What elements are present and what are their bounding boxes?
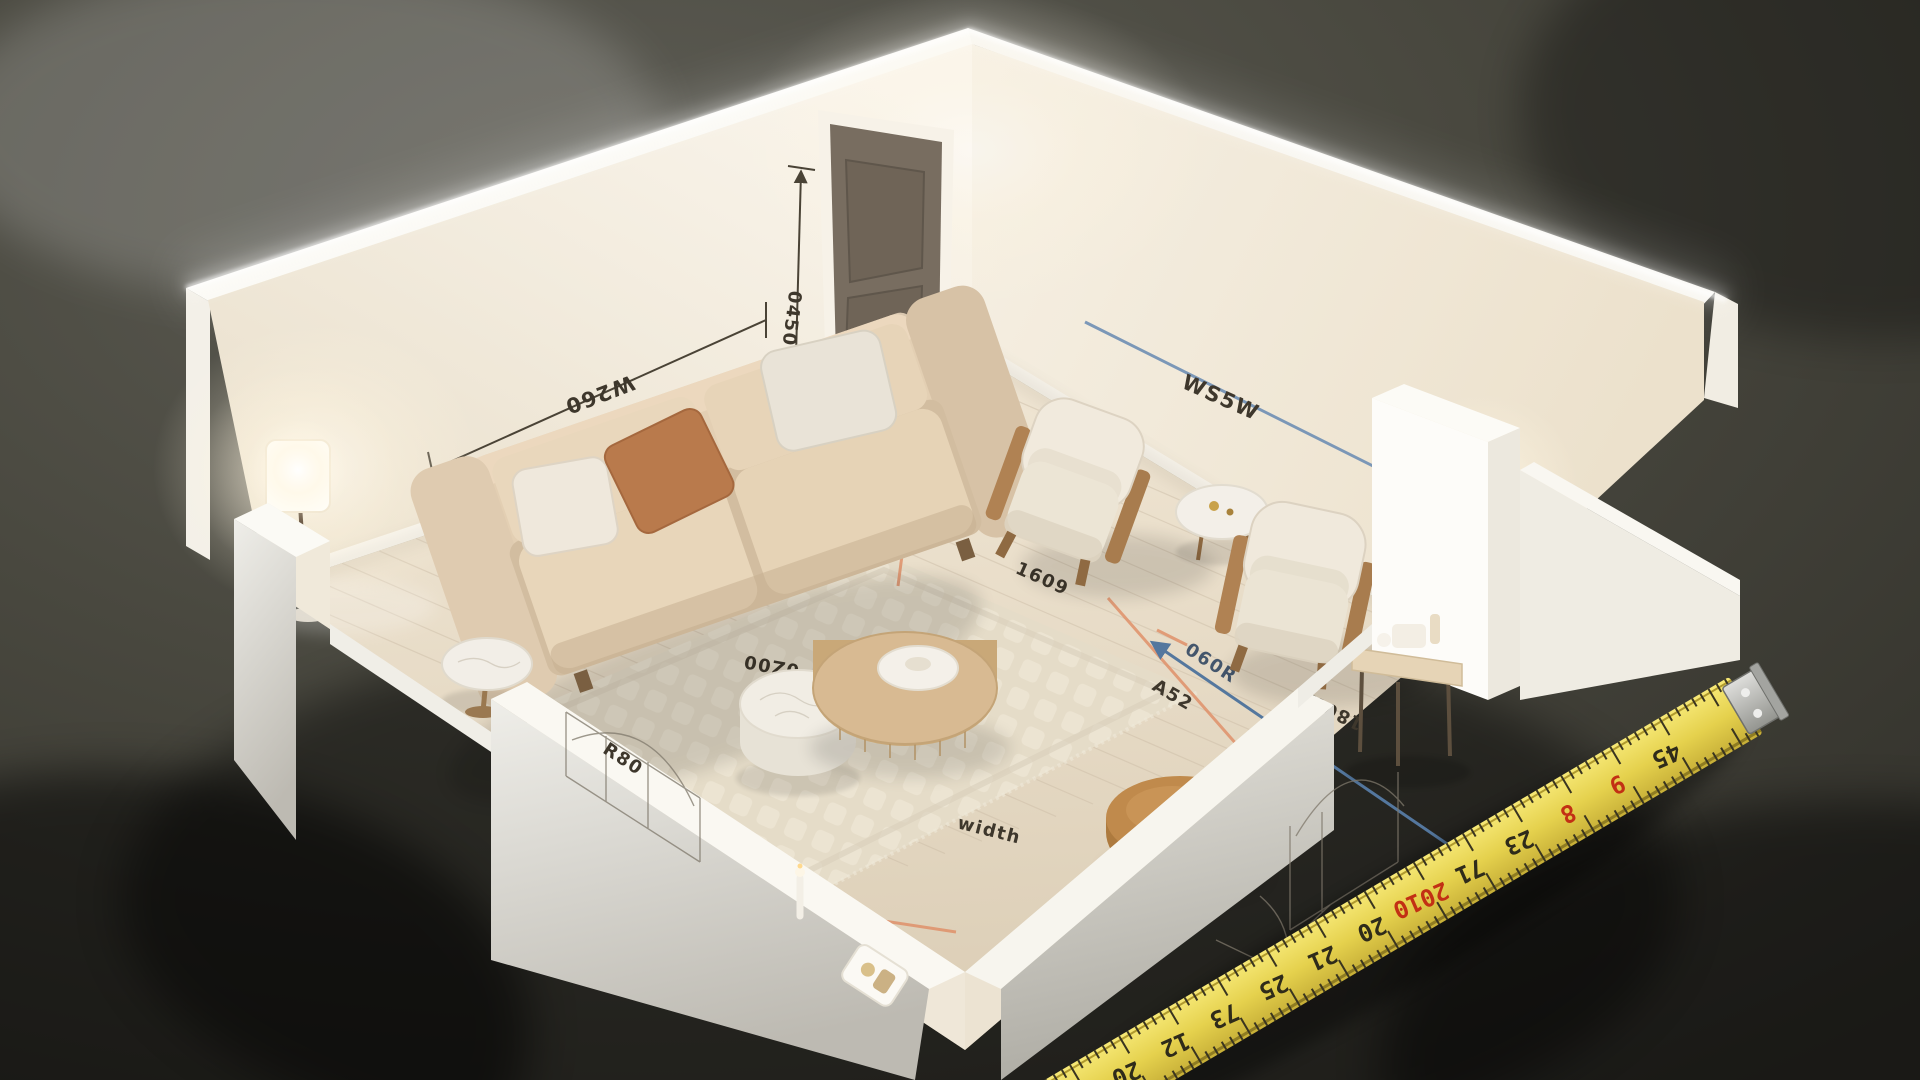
gold-decor-icon [1227, 509, 1234, 516]
screenshot-stage: W260 0450 WS5W 201 060R A52 1609 180W wi… [0, 0, 1920, 1080]
tray-button [905, 657, 931, 671]
pillow-cream [510, 455, 620, 558]
console-bottle [1430, 614, 1440, 644]
console-tray [1392, 624, 1426, 648]
room-render: W260 0450 WS5W 201 060R A52 1609 180W wi… [0, 0, 1920, 1080]
candle-flame-icon [798, 864, 803, 869]
side-table-top [442, 638, 532, 690]
console-shadow [1346, 756, 1470, 788]
gold-decor-icon [1209, 501, 1219, 511]
candlestick [795, 864, 805, 917]
door-panel-upper [846, 160, 924, 282]
pillar-side-face [1488, 428, 1520, 700]
console-cup [1377, 633, 1391, 647]
corner-light-pool [732, 0, 1212, 310]
coffee-table-wood [810, 632, 1010, 778]
console-leg [1360, 668, 1362, 752]
